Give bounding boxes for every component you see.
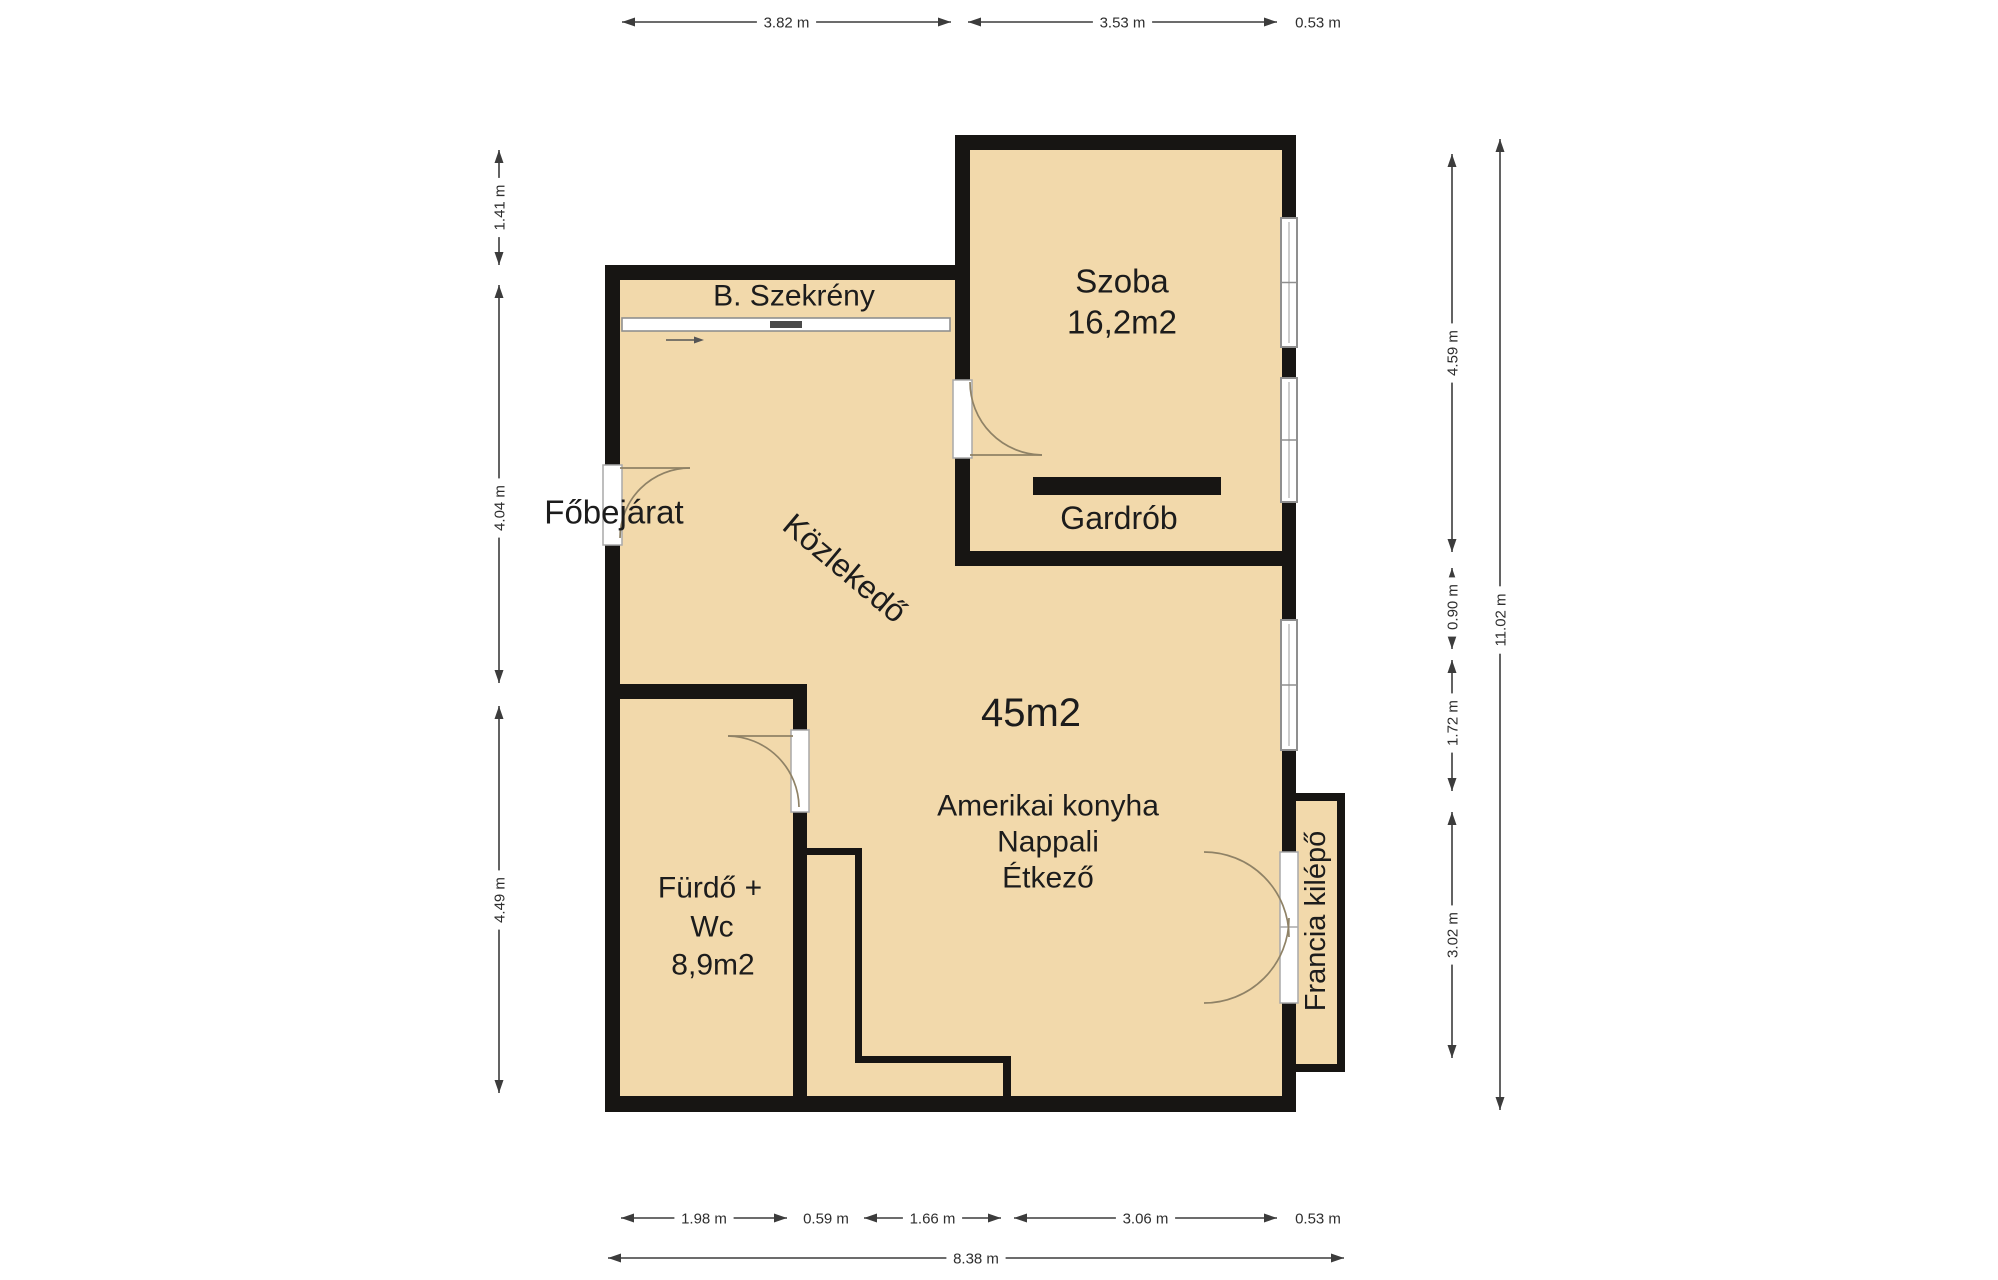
label-b-szekreny: B. Szekrény bbox=[713, 280, 875, 313]
floor-plan-svg: FőbejáratB. SzekrényKözlekedőSzoba16,2m2… bbox=[0, 0, 1998, 1280]
svg-text:4.04 m: 4.04 m bbox=[492, 485, 509, 531]
arrow-left-icon bbox=[968, 18, 981, 27]
svg-text:1.41 m: 1.41 m bbox=[492, 185, 509, 231]
svg-text:4.59 m: 4.59 m bbox=[1445, 330, 1462, 376]
dimension-label: 3.06 m bbox=[1116, 1208, 1175, 1228]
arrow-up-icon bbox=[1496, 139, 1505, 152]
dimension-label: 4.49 m bbox=[489, 870, 509, 929]
arrow-right-icon bbox=[938, 18, 951, 27]
window bbox=[1281, 620, 1297, 750]
svg-text:3.02 m: 3.02 m bbox=[1445, 912, 1462, 958]
svg-text:8.38 m: 8.38 m bbox=[953, 1251, 999, 1268]
svg-text:0.53 m: 0.53 m bbox=[1295, 15, 1341, 32]
dimension-label: 3.53 m bbox=[1093, 12, 1152, 32]
label-living-area: 45m2 bbox=[981, 691, 1081, 735]
arrow-right-icon bbox=[988, 1214, 1001, 1223]
arrow-right-icon bbox=[1331, 1254, 1344, 1263]
wall bbox=[855, 1056, 1011, 1063]
arrow-up-icon bbox=[1448, 660, 1457, 673]
svg-text:0.53 m: 0.53 m bbox=[1295, 1211, 1341, 1228]
svg-text:1.72 m: 1.72 m bbox=[1445, 700, 1462, 746]
svg-text:1.98 m: 1.98 m bbox=[681, 1211, 727, 1228]
wall bbox=[955, 135, 970, 380]
wall bbox=[793, 812, 807, 1112]
dimension-label: 0.59 m bbox=[796, 1208, 855, 1228]
dimension-label: 4.04 m bbox=[489, 478, 509, 537]
arrow-left-icon bbox=[864, 1214, 877, 1223]
wall bbox=[605, 1096, 1296, 1112]
wall bbox=[605, 265, 970, 280]
bathroom-door-frame bbox=[791, 730, 809, 812]
svg-text:0.90 m: 0.90 m bbox=[1445, 584, 1462, 630]
arrow-down-icon bbox=[1496, 1097, 1505, 1110]
wall bbox=[1282, 347, 1296, 378]
svg-text:11.02 m: 11.02 m bbox=[1493, 593, 1510, 646]
label-francia-kilepo: Francia kilépő bbox=[1300, 831, 1332, 1012]
svg-text:4.49 m: 4.49 m bbox=[492, 877, 509, 923]
dimension-label: 8.38 m bbox=[946, 1248, 1005, 1268]
window bbox=[1281, 218, 1297, 347]
dimension-label: 1.41 m bbox=[489, 178, 509, 237]
wall bbox=[955, 551, 1296, 566]
wall bbox=[1282, 1003, 1296, 1112]
label-gardrob: Gardrób bbox=[1060, 500, 1177, 536]
wall bbox=[807, 848, 862, 855]
svg-text:3.82 m: 3.82 m bbox=[764, 15, 810, 32]
label-szoba: Szoba bbox=[1075, 263, 1169, 300]
label-fobejarat: Főbejárat bbox=[544, 494, 683, 531]
arrow-down-icon bbox=[1448, 1045, 1457, 1058]
label-furdo-area: 8,9m2 bbox=[671, 949, 754, 982]
window bbox=[1281, 378, 1297, 502]
dimension-label: 3.02 m bbox=[1442, 905, 1462, 964]
arrow-down-icon bbox=[1448, 636, 1457, 649]
label-nappali: Nappali bbox=[997, 826, 1099, 859]
svg-text:0.59 m: 0.59 m bbox=[803, 1211, 849, 1228]
arrow-up-icon bbox=[495, 150, 504, 163]
arrow-left-icon bbox=[622, 18, 635, 27]
dimension-label: 11.02 m bbox=[1490, 586, 1510, 653]
arrow-down-icon bbox=[1448, 539, 1457, 552]
label-wc: Wc bbox=[690, 911, 733, 944]
floor-plan-page: FőbejáratB. SzekrényKözlekedőSzoba16,2m2… bbox=[0, 0, 1998, 1280]
arrow-up-icon bbox=[495, 285, 504, 298]
dimension-label: 1.66 m bbox=[903, 1208, 962, 1228]
szoba-door-frame bbox=[953, 380, 972, 458]
arrow-down-icon bbox=[495, 252, 504, 265]
arrow-left-icon bbox=[1014, 1214, 1027, 1223]
arrow-left-icon bbox=[608, 1254, 621, 1263]
svg-text:1.66 m: 1.66 m bbox=[910, 1211, 956, 1228]
gardrob-wardrobe-bar bbox=[1033, 477, 1221, 495]
wall bbox=[955, 458, 970, 566]
dimension-label: 0.90 m bbox=[1442, 577, 1462, 636]
label-amerikai-konyha: Amerikai konyha bbox=[937, 790, 1159, 823]
svg-text:3.53 m: 3.53 m bbox=[1100, 15, 1146, 32]
track-handle bbox=[770, 321, 802, 328]
dimension-label: 1.98 m bbox=[674, 1208, 733, 1228]
wall bbox=[1282, 135, 1296, 218]
arrow-left-icon bbox=[621, 1214, 634, 1223]
dimension-label: 1.72 m bbox=[1442, 693, 1462, 752]
wall bbox=[955, 135, 1296, 150]
wall bbox=[855, 848, 862, 1063]
wall bbox=[605, 684, 807, 699]
arrow-up-icon bbox=[495, 706, 504, 719]
arrow-down-icon bbox=[495, 1080, 504, 1093]
dimension-label: 0.53 m bbox=[1288, 12, 1347, 32]
wall bbox=[793, 684, 807, 730]
arrow-down-icon bbox=[495, 670, 504, 683]
arrow-up-icon bbox=[1448, 812, 1457, 825]
arrow-right-icon bbox=[774, 1214, 787, 1223]
dimension-label: 3.82 m bbox=[757, 12, 816, 32]
arrow-up-icon bbox=[1448, 154, 1457, 167]
label-szoba-area: 16,2m2 bbox=[1067, 304, 1177, 341]
label-etkezo: Étkező bbox=[1002, 862, 1094, 895]
arrow-down-icon bbox=[1448, 778, 1457, 791]
label-furdo: Fürdő + bbox=[658, 872, 762, 905]
wall bbox=[1282, 750, 1296, 852]
wall bbox=[1003, 1056, 1011, 1104]
windows bbox=[1281, 218, 1297, 750]
arrow-right-icon bbox=[1264, 18, 1277, 27]
dimension-label: 4.59 m bbox=[1442, 323, 1462, 382]
arrow-right-icon bbox=[1264, 1214, 1277, 1223]
wall bbox=[1282, 502, 1296, 620]
svg-text:3.06 m: 3.06 m bbox=[1123, 1211, 1169, 1228]
dimension-label: 0.53 m bbox=[1288, 1208, 1347, 1228]
